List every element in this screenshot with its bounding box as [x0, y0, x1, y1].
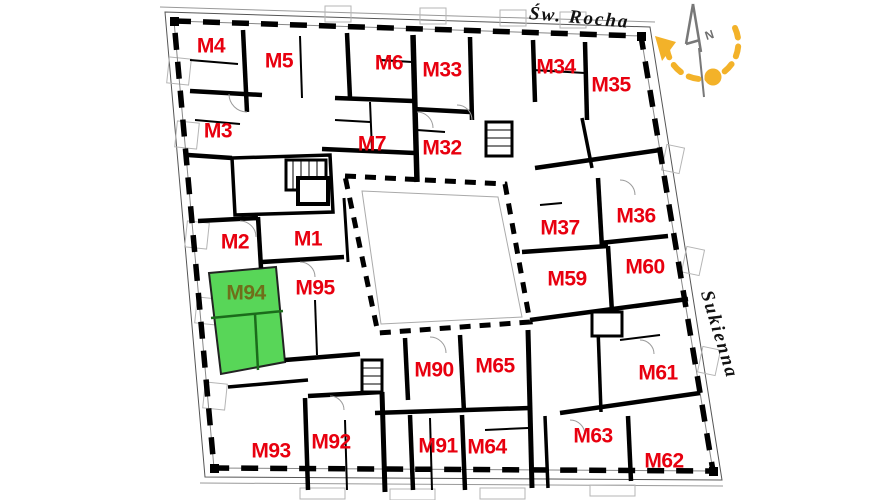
unit-label-m61[interactable]: M61	[638, 363, 677, 384]
unit-label-m3[interactable]: M3	[204, 121, 232, 142]
unit-label-m6[interactable]: M6	[375, 53, 403, 74]
courtyard	[345, 176, 530, 333]
unit-label-m32[interactable]: M32	[422, 138, 461, 159]
unit-label-m60[interactable]: M60	[625, 257, 664, 278]
unit-label-m5[interactable]: M5	[265, 51, 293, 72]
unit-label-m62[interactable]: M62	[644, 451, 683, 472]
unit-label-m2[interactable]: M2	[221, 232, 249, 253]
unit-label-m64[interactable]: M64	[467, 437, 506, 458]
unit-label-m59[interactable]: M59	[547, 269, 586, 290]
unit-label-m37[interactable]: M37	[540, 218, 579, 239]
floorplan-canvas: Św. Rocha Sukienna N M4 M5 M6 M33 M34 M3…	[0, 0, 888, 500]
unit-label-m7[interactable]: M7	[358, 134, 386, 155]
unit-label-m4[interactable]: M4	[197, 36, 225, 57]
unit-label-m65[interactable]: M65	[475, 356, 514, 377]
rotation-dot	[705, 69, 722, 86]
unit-label-m34[interactable]: M34	[536, 57, 575, 78]
unit-label-m35[interactable]: M35	[591, 75, 630, 96]
unit-label-m95[interactable]: M95	[295, 278, 334, 299]
north-compass-icon	[686, 4, 704, 97]
unit-label-m92[interactable]: M92	[311, 432, 350, 453]
unit-label-m36[interactable]: M36	[616, 206, 655, 227]
unit-walls	[188, 30, 700, 492]
unit-label-m91[interactable]: M91	[418, 436, 457, 457]
unit-label-m1[interactable]: M1	[294, 229, 322, 250]
unit-label-m94-highlighted[interactable]: M94	[226, 283, 265, 304]
unit-label-m93[interactable]: M93	[251, 441, 290, 462]
unit-label-m90[interactable]: M90	[414, 360, 453, 381]
exterior-walls	[170, 17, 718, 476]
unit-label-m63[interactable]: M63	[573, 426, 612, 447]
rotate-view-arrow-icon[interactable]	[655, 28, 738, 86]
unit-label-m33[interactable]: M33	[422, 60, 461, 81]
